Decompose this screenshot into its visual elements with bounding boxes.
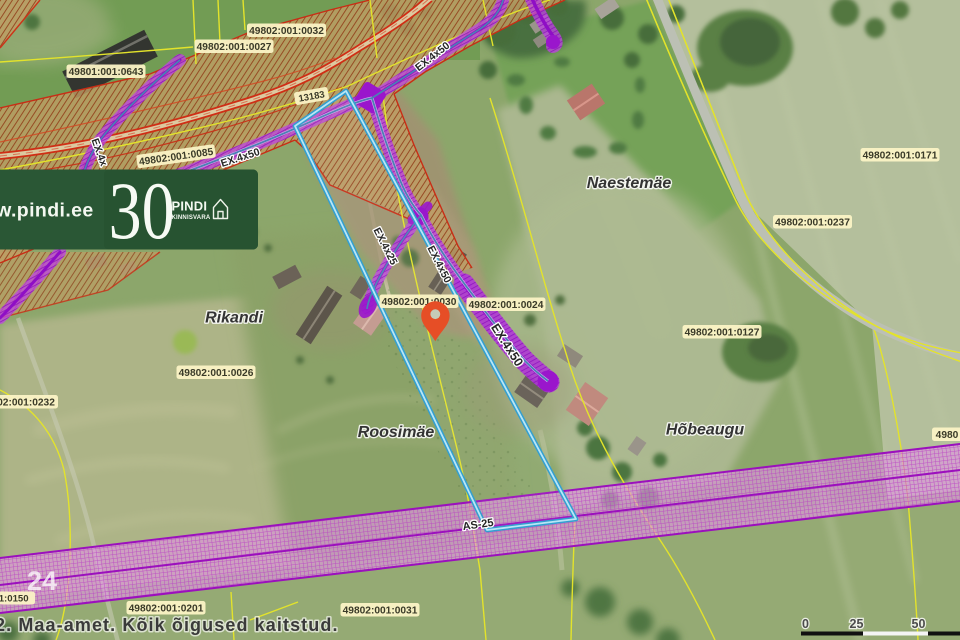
svg-text:Hõbeaugu: Hõbeaugu [666,422,744,439]
svg-text:49802:001:0026: 49802:001:0026 [179,368,254,379]
svg-text:25: 25 [850,617,864,631]
svg-text:49802:001:0171: 49802:001:0171 [863,151,938,162]
svg-text:49802:001:0027: 49802:001:0027 [197,42,272,53]
svg-text:4980: 4980 [936,430,959,441]
svg-text:49802:001:0024: 49802:001:0024 [469,300,544,311]
svg-text:01:0150: 01:0150 [0,594,29,605]
svg-text:49802:001:0237: 49802:001:0237 [775,218,850,229]
svg-text:0: 0 [802,617,809,631]
svg-text:02:001:0232: 02:001:0232 [0,398,55,409]
svg-text:Rikandi: Rikandi [205,310,263,327]
svg-text:www.pindi.ee: www.pindi.ee [0,200,94,222]
svg-text:Naestemäe: Naestemäe [587,175,672,192]
svg-text:2. Maa-amet. Kõik õigused kait: 2. Maa-amet. Kõik õigused kaitstud. [0,615,339,635]
svg-text:50: 50 [912,617,926,631]
svg-text:24: 24 [27,566,57,596]
svg-text:30: 30 [109,166,175,256]
svg-text:49802:001:0201: 49802:001:0201 [129,604,204,615]
svg-text:49802:001:0032: 49802:001:0032 [249,26,324,37]
svg-text:49802:001:0127: 49802:001:0127 [685,328,760,339]
svg-text:49801:001:0643: 49801:001:0643 [69,67,144,78]
svg-text:PINDI: PINDI [172,199,208,214]
svg-text:Roosimäe: Roosimäe [358,424,435,441]
svg-text:49802:001:0031: 49802:001:0031 [343,606,418,617]
svg-text:KINNISVARA: KINNISVARA [172,215,211,221]
